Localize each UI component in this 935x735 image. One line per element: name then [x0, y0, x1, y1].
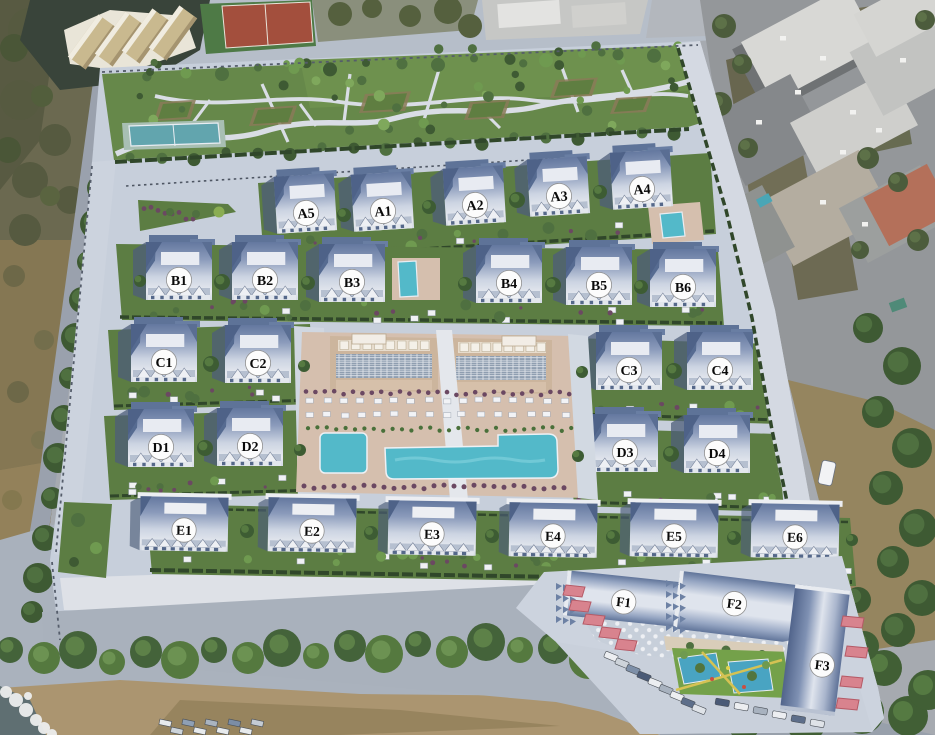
- svg-text:E2: E2: [304, 524, 320, 539]
- svg-text:A1: A1: [374, 204, 392, 220]
- svg-text:B2: B2: [257, 274, 273, 289]
- svg-text:C1: C1: [155, 356, 172, 371]
- svg-text:E1: E1: [176, 523, 192, 538]
- svg-text:E5: E5: [666, 529, 682, 544]
- svg-text:C3: C3: [620, 364, 637, 379]
- svg-text:B3: B3: [344, 276, 360, 291]
- svg-text:D3: D3: [616, 446, 633, 461]
- svg-text:F2: F2: [726, 596, 743, 613]
- svg-text:C2: C2: [249, 357, 266, 372]
- svg-text:E3: E3: [424, 527, 440, 542]
- svg-text:B5: B5: [591, 279, 607, 294]
- svg-text:A5: A5: [297, 206, 315, 222]
- svg-text:D1: D1: [152, 441, 169, 456]
- svg-text:A2: A2: [466, 198, 484, 214]
- svg-text:A3: A3: [550, 189, 568, 205]
- svg-text:C4: C4: [711, 364, 728, 379]
- svg-text:A4: A4: [633, 182, 651, 198]
- svg-text:E4: E4: [545, 529, 561, 544]
- svg-text:E6: E6: [787, 530, 803, 545]
- svg-text:F3: F3: [814, 657, 831, 674]
- svg-text:F1: F1: [615, 594, 632, 611]
- svg-text:B4: B4: [501, 277, 517, 292]
- svg-text:B6: B6: [675, 281, 691, 296]
- svg-text:D4: D4: [708, 447, 725, 462]
- svg-text:B1: B1: [171, 274, 187, 289]
- svg-text:D2: D2: [241, 440, 258, 455]
